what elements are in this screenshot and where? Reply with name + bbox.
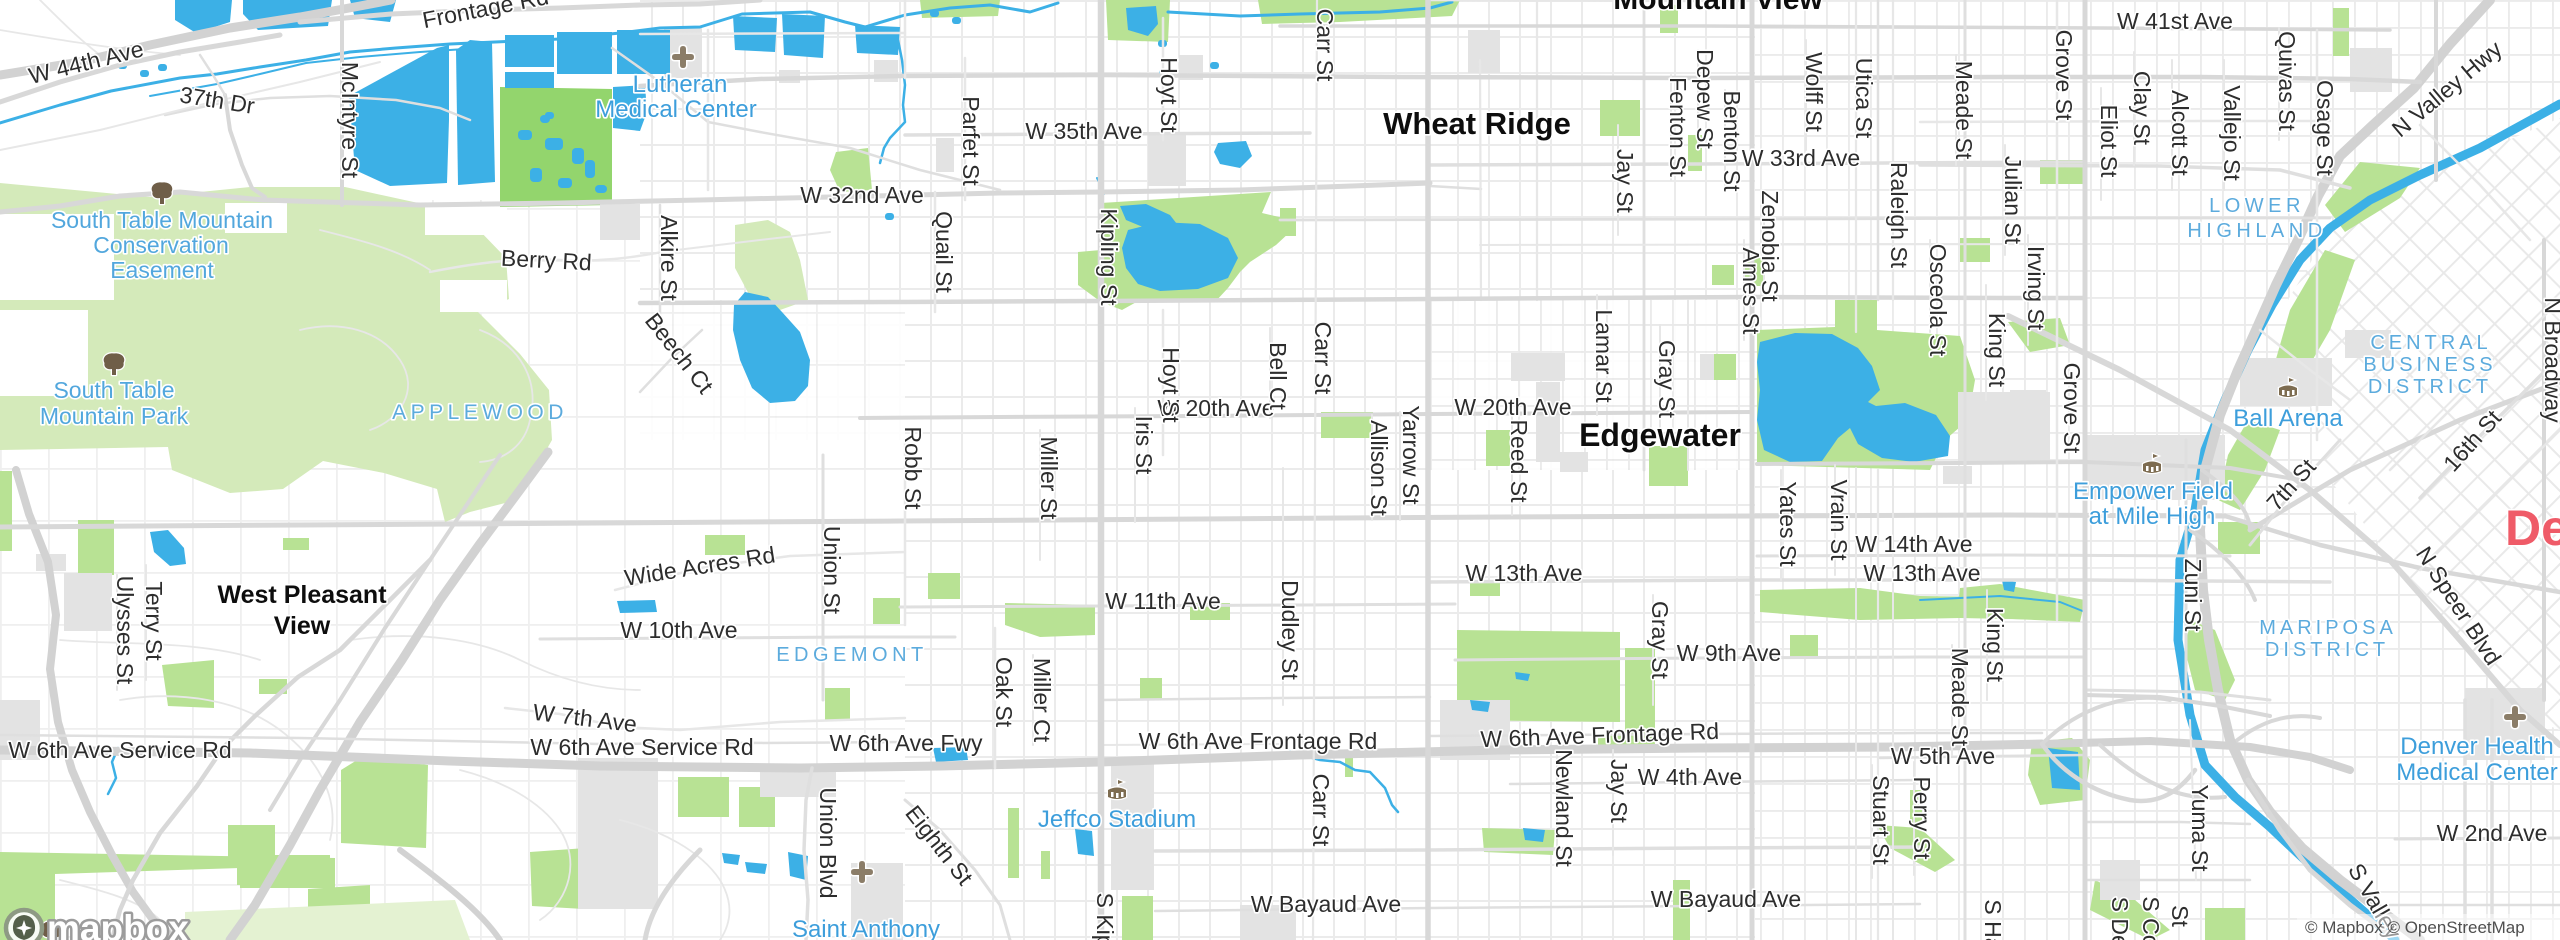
svg-text:Vrain St: Vrain St [1826,480,1852,562]
svg-text:DISTRICT: DISTRICT [2265,639,2389,661]
svg-text:W 13th Ave: W 13th Ave [1863,560,1980,586]
svg-text:W 11th Ave: W 11th Ave [1105,588,1221,614]
svg-text:W 35th Ave: W 35th Ave [1025,118,1142,144]
svg-text:Reed St: Reed St [1506,419,1532,503]
svg-text:Iris St: Iris St [1131,416,1157,475]
svg-text:Denv: Denv [2505,500,2560,556]
svg-text:Wolff St: Wolff St [1801,52,1827,132]
svg-text:Irving St: Irving St [2023,246,2049,331]
svg-text:Kipling St: Kipling St [1096,208,1122,306]
svg-text:Meade St: Meade St [1951,61,1977,160]
svg-text:W 32nd Ave: W 32nd Ave [800,182,924,208]
svg-text:W 41st Ave: W 41st Ave [2117,8,2233,34]
svg-text:Yuma St: Yuma St [2187,785,2213,873]
svg-text:Union Blvd: Union Blvd [815,787,841,898]
svg-text:Yates St: Yates St [1775,481,1801,567]
svg-text:McIntyre St: McIntyre St [337,62,363,179]
svg-text:Union St: Union St [819,526,845,615]
svg-text:Depew St: Depew St [1692,49,1718,149]
svg-text:Stuart St: Stuart St [1868,775,1894,865]
svg-text:mapbox: mapbox [47,908,189,940]
svg-text:Zuni St: Zuni St [2180,559,2206,632]
svg-text:S Co: S Co [2138,896,2164,940]
svg-text:Fenton St: Fenton St [1665,77,1691,177]
svg-text:CENTRAL: CENTRAL [2370,332,2491,354]
svg-text:BUSINESS: BUSINESS [2363,354,2496,376]
svg-text:Benton St: Benton St [1719,90,1745,192]
svg-text:HIGHLAND: HIGHLAND [2187,220,2326,242]
svg-text:Utica St: Utica St [1851,58,1877,139]
svg-text:Hoyt St: Hoyt St [1158,347,1184,423]
svg-text:DISTRICT: DISTRICT [2368,376,2492,398]
svg-text:Miller Ct: Miller Ct [1029,658,1055,743]
svg-text:W Bayaud Ave: W Bayaud Ave [1651,886,1801,912]
svg-text:Wheat Ridge: Wheat Ridge [1383,106,1571,141]
svg-text:W 4th Ave: W 4th Ave [1638,764,1742,790]
svg-text:Dudley St: Dudley St [1277,580,1303,680]
svg-text:Oak St: Oak St [991,657,1017,728]
svg-text:S Ha: S Ha [1980,899,2006,940]
svg-text:Quail St: Quail St [931,211,957,293]
svg-text:Saint Anthony: Saint Anthony [792,916,940,940]
svg-text:Zenobia St: Zenobia St [1757,190,1783,302]
svg-text:Robb St: Robb St [900,426,926,510]
svg-text:Gray St: Gray St [1647,601,1673,680]
svg-text:Denver Health: Denver Health [2400,733,2553,760]
svg-text:Eliot St: Eliot St [2096,105,2122,178]
svg-text:Quivas St: Quivas St [2274,31,2300,131]
svg-text:Perry St: Perry St [1909,776,1935,860]
svg-text:W 6th Ave Service Rd: W 6th Ave Service Rd [8,737,231,763]
svg-text:Mountain View: Mountain View [1613,0,1823,16]
svg-text:Bell Ct: Bell Ct [1265,342,1291,410]
svg-text:W 6th Ave Service Rd: W 6th Ave Service Rd [530,734,753,760]
svg-text:Jeffco Stadium: Jeffco Stadium [1038,806,1196,833]
svg-text:Berry Rd: Berry Rd [500,245,592,276]
svg-text:Ball Arena: Ball Arena [2233,405,2343,432]
svg-text:Medical Center: Medical Center [2396,759,2557,786]
svg-text:South Table Mountain: South Table Mountain [51,207,273,233]
svg-text:King St: King St [1984,313,2010,388]
svg-text:EDGEMONT: EDGEMONT [776,644,928,666]
svg-text:Gray St: Gray St [1654,340,1680,419]
svg-text:Grove St: Grove St [2059,363,2085,454]
svg-text:St: St [2167,905,2193,927]
svg-text:Newland St: Newland St [1551,749,1577,867]
svg-text:Alkire St: Alkire St [656,215,682,301]
svg-text:Yarrow St: Yarrow St [1398,405,1424,505]
svg-text:Vallejo St: Vallejo St [2219,85,2245,181]
svg-text:Carr St: Carr St [1308,774,1334,847]
svg-text:Ulysses St: Ulysses St [112,576,138,685]
svg-text:Clay St: Clay St [2129,71,2155,146]
svg-text:W 6th Ave Frontage Rd: W 6th Ave Frontage Rd [1139,728,1378,754]
svg-text:Conservation: Conservation [93,232,229,258]
svg-text:Meade St: Meade St [1947,648,1973,747]
svg-text:Osceola St: Osceola St [1925,244,1951,357]
svg-text:Raleigh St: Raleigh St [1886,162,1912,269]
svg-text:Edgewater: Edgewater [1579,417,1741,453]
svg-text:Terry St: Terry St [141,581,167,661]
svg-text:Parfet St: Parfet St [958,96,984,186]
svg-text:Medical Center: Medical Center [595,96,756,123]
svg-text:LOWER: LOWER [2209,195,2305,217]
svg-text:N Broadway: N Broadway [2540,297,2560,423]
svg-text:Carr St: Carr St [1310,322,1336,395]
svg-text:S Dec: S Dec [2107,897,2133,940]
svg-text:South Table: South Table [53,377,174,403]
svg-text:W 33rd Ave: W 33rd Ave [1742,145,1860,171]
svg-text:S Kipling: S Kipling [1092,893,1118,940]
svg-text:Julian St: Julian St [2000,156,2026,245]
svg-text:W 14th Ave: W 14th Ave [1855,531,1972,557]
svg-text:View: View [274,612,331,640]
svg-text:MARIPOSA: MARIPOSA [2259,617,2397,639]
svg-text:APPLEWOOD: APPLEWOOD [392,401,568,424]
svg-text:W 13th Ave: W 13th Ave [1465,560,1582,586]
svg-text:Mountain Park: Mountain Park [40,403,189,429]
svg-text:Lamar St: Lamar St [1591,309,1617,403]
svg-text:Carr St: Carr St [1312,9,1338,82]
svg-text:W 2nd Ave: W 2nd Ave [2437,820,2548,846]
svg-text:West Pleasant: West Pleasant [217,581,387,609]
svg-text:W 9th Ave: W 9th Ave [1677,640,1781,666]
svg-text:© Mapbox © OpenStreetMap: © Mapbox © OpenStreetMap [2305,918,2525,937]
svg-text:W 5th Ave: W 5th Ave [1891,743,1995,769]
svg-text:King St: King St [1982,608,2008,683]
svg-text:Empower Field: Empower Field [2073,478,2233,505]
svg-text:W 20th Ave: W 20th Ave [1454,394,1571,420]
svg-text:Lutheran: Lutheran [633,71,728,98]
svg-text:Grove St: Grove St [2051,30,2077,121]
svg-text:at Mile High: at Mile High [2089,503,2216,530]
svg-text:Allison St: Allison St [1366,420,1392,516]
svg-text:Jay St: Jay St [1612,149,1638,214]
svg-text:Jay St: Jay St [1606,759,1632,824]
svg-text:Hoyt St: Hoyt St [1156,57,1182,133]
svg-text:Easement: Easement [110,257,214,283]
svg-text:Osage St: Osage St [2312,80,2338,176]
svg-text:Miller St: Miller St [1036,436,1062,520]
svg-text:W 10th Ave: W 10th Ave [620,617,737,643]
svg-text:W 6th Ave Fwy: W 6th Ave Fwy [830,730,983,756]
svg-text:Alcott St: Alcott St [2167,90,2193,176]
svg-text:W Bayaud Ave: W Bayaud Ave [1251,891,1401,917]
